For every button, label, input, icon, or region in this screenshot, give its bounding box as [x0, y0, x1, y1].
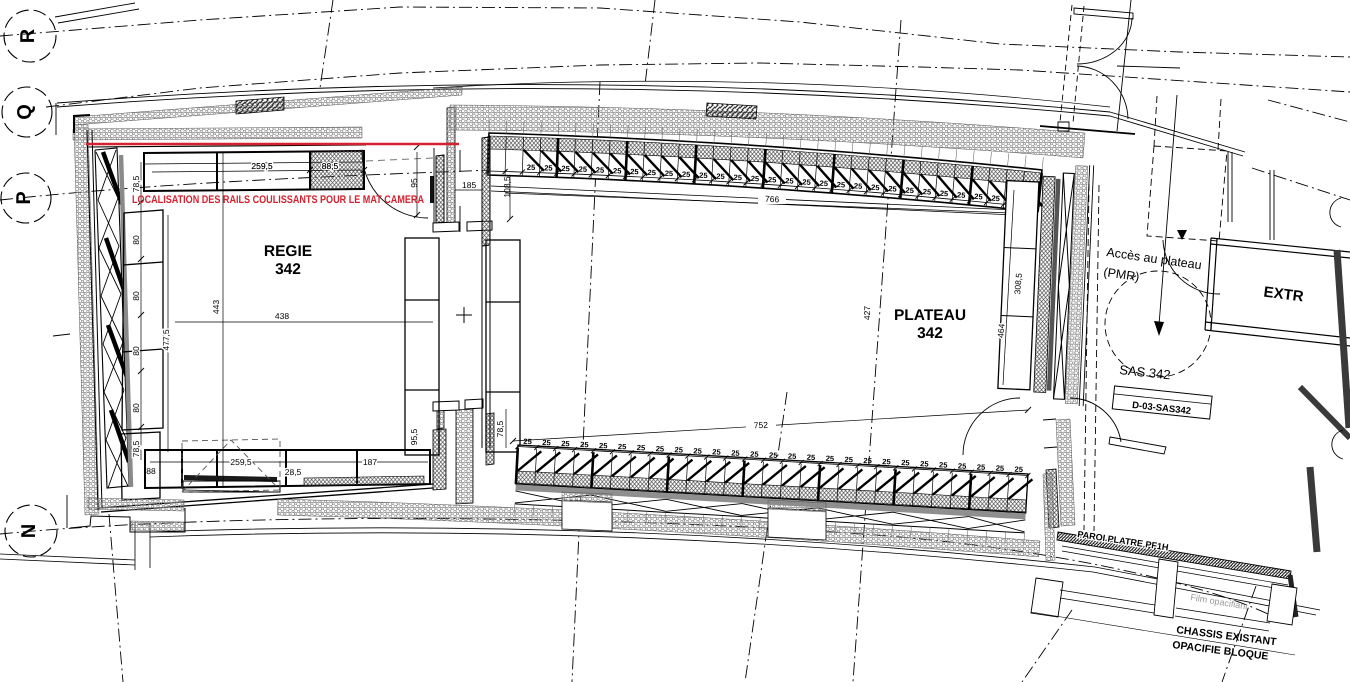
svg-text:25: 25 [544, 163, 554, 172]
svg-text:25: 25 [768, 175, 778, 185]
svg-text:25: 25 [939, 189, 949, 199]
svg-text:25: 25 [819, 179, 829, 189]
svg-text:REGIE: REGIE [264, 243, 312, 260]
svg-text:R: R [17, 28, 39, 43]
svg-text:259,5: 259,5 [230, 457, 252, 467]
svg-text:25: 25 [674, 445, 684, 455]
svg-text:28,5: 28,5 [285, 467, 302, 477]
svg-text:25: 25 [785, 176, 795, 186]
svg-text:PLATEAU: PLATEAU [894, 307, 966, 324]
svg-text:25: 25 [958, 461, 968, 471]
svg-text:259,5: 259,5 [251, 161, 273, 171]
svg-text:25: 25 [769, 451, 779, 461]
svg-text:25: 25 [655, 444, 665, 454]
svg-text:25: 25 [647, 168, 657, 177]
svg-text:Q: Q [14, 104, 36, 120]
svg-text:LOCALISATION DES RAILS COULISS: LOCALISATION DES RAILS COULISSANTS POUR … [132, 194, 424, 206]
svg-text:25: 25 [596, 165, 606, 174]
svg-text:25: 25 [974, 192, 984, 202]
svg-text:25: 25 [599, 441, 609, 451]
svg-text:25: 25 [733, 173, 743, 183]
svg-text:766: 766 [765, 194, 780, 205]
svg-text:438: 438 [275, 311, 289, 321]
svg-text:25: 25 [844, 455, 854, 465]
svg-text:427: 427 [862, 306, 872, 320]
svg-text:78,5: 78,5 [131, 175, 141, 192]
svg-text:25: 25 [788, 452, 798, 462]
svg-text:25: 25 [664, 169, 674, 178]
svg-text:25: 25 [637, 443, 647, 453]
svg-text:25: 25 [939, 460, 949, 470]
svg-text:P: P [13, 191, 35, 204]
svg-text:25: 25 [580, 440, 590, 450]
svg-text:25: 25 [523, 437, 533, 446]
svg-text:25: 25 [699, 171, 709, 181]
svg-text:80: 80 [131, 235, 141, 245]
svg-text:25: 25 [901, 458, 911, 468]
svg-text:25: 25 [905, 186, 915, 196]
svg-text:25: 25 [836, 180, 846, 190]
svg-text:95,5: 95,5 [409, 428, 419, 445]
svg-text:25: 25 [750, 449, 760, 459]
svg-text:25: 25 [731, 448, 741, 458]
svg-text:342: 342 [917, 325, 943, 342]
svg-text:25: 25 [716, 172, 726, 182]
svg-text:25: 25 [682, 170, 692, 180]
svg-text:25: 25 [693, 446, 703, 456]
svg-text:88,5: 88,5 [322, 161, 339, 171]
svg-text:25: 25 [977, 462, 987, 472]
svg-text:25: 25 [957, 190, 967, 200]
svg-text:25: 25 [882, 457, 892, 467]
svg-text:25: 25 [871, 183, 881, 193]
svg-text:185: 185 [462, 180, 476, 190]
svg-text:25: 25 [750, 174, 760, 184]
svg-text:88: 88 [146, 466, 156, 476]
svg-text:464: 464 [995, 323, 1006, 338]
svg-text:25: 25 [527, 163, 537, 172]
svg-text:25: 25 [991, 194, 1001, 204]
svg-text:187: 187 [363, 457, 377, 467]
svg-text:25: 25 [561, 439, 571, 449]
svg-text:25: 25 [920, 459, 930, 469]
svg-text:477,5: 477,5 [161, 329, 171, 351]
svg-text:78,5: 78,5 [131, 440, 141, 457]
svg-text:25: 25 [807, 453, 817, 463]
svg-text:80: 80 [131, 291, 141, 301]
svg-text:752: 752 [753, 420, 768, 431]
svg-text:25: 25 [888, 184, 898, 194]
svg-text:25: 25 [613, 166, 623, 175]
svg-text:25: 25 [802, 177, 812, 187]
svg-text:25: 25 [630, 167, 640, 176]
svg-text:25: 25 [854, 181, 864, 191]
svg-text:25: 25 [561, 164, 571, 173]
svg-text:95: 95 [409, 178, 419, 188]
svg-text:443: 443 [211, 300, 221, 314]
svg-text:25: 25 [578, 165, 588, 174]
svg-text:78,5: 78,5 [495, 420, 505, 437]
svg-text:80: 80 [131, 346, 141, 356]
svg-text:25: 25 [922, 187, 932, 197]
svg-text:342: 342 [275, 261, 301, 278]
svg-text:25: 25 [712, 447, 722, 457]
svg-text:80: 80 [131, 403, 141, 413]
svg-text:25: 25 [995, 464, 1005, 474]
svg-text:25: 25 [1014, 465, 1024, 475]
svg-text:25: 25 [618, 442, 628, 452]
svg-text:25: 25 [825, 454, 835, 464]
svg-text:308,5: 308,5 [1012, 272, 1024, 294]
svg-text:25: 25 [863, 456, 873, 466]
